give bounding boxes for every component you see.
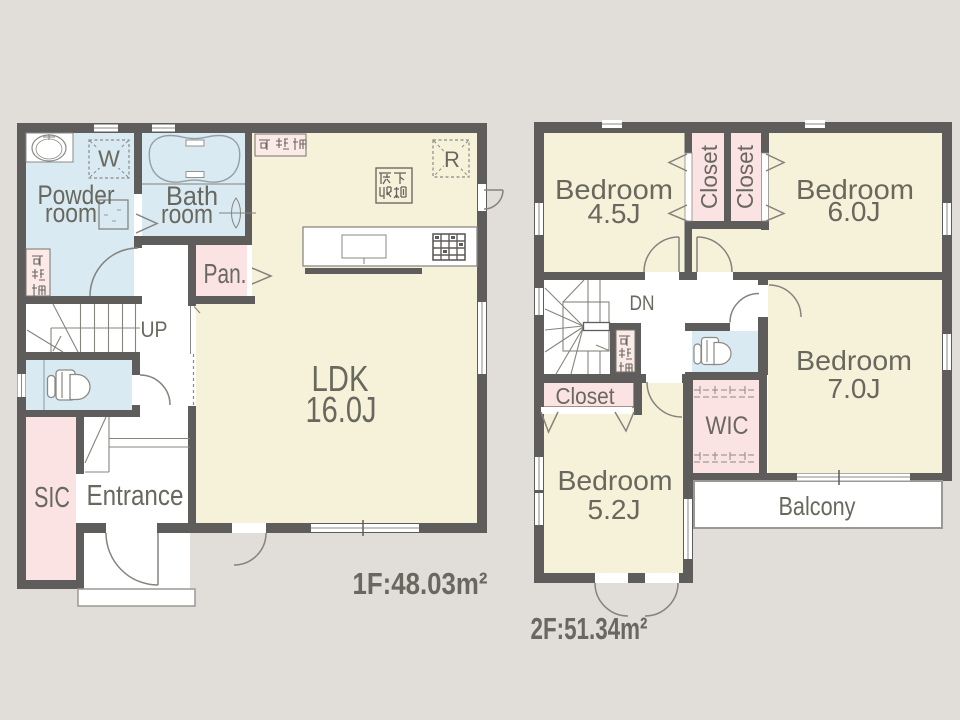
svg-text:DN: DN xyxy=(630,292,655,315)
svg-text:WIC: WIC xyxy=(706,412,749,440)
svg-text:Bedroom: Bedroom xyxy=(796,345,912,376)
svg-text:R: R xyxy=(444,147,460,172)
svg-text:5.2J: 5.2J xyxy=(588,494,641,525)
svg-text:Entrance: Entrance xyxy=(87,480,184,512)
svg-text:Closet: Closet xyxy=(556,383,616,409)
svg-text:room: room xyxy=(45,198,97,228)
svg-text:Bedroom: Bedroom xyxy=(558,465,673,496)
svg-text:SIC: SIC xyxy=(34,482,70,514)
svg-text:Balcony: Balcony xyxy=(779,491,856,521)
svg-text:16.0J: 16.0J xyxy=(306,389,377,430)
svg-text:room: room xyxy=(161,199,213,229)
svg-text:4.5J: 4.5J xyxy=(588,198,641,229)
svg-text:Closet: Closet xyxy=(696,144,722,209)
svg-text:6.0J: 6.0J xyxy=(828,196,881,227)
svg-text:1F:48.03m²: 1F:48.03m² xyxy=(353,566,488,601)
svg-text:2F:51.34m²: 2F:51.34m² xyxy=(531,611,648,646)
svg-text:W: W xyxy=(98,146,120,172)
svg-text:7.0J: 7.0J xyxy=(828,373,881,404)
svg-text:Closet: Closet xyxy=(732,144,758,209)
svg-text:UP: UP xyxy=(141,317,168,342)
svg-text:Pan.: Pan. xyxy=(204,258,247,289)
